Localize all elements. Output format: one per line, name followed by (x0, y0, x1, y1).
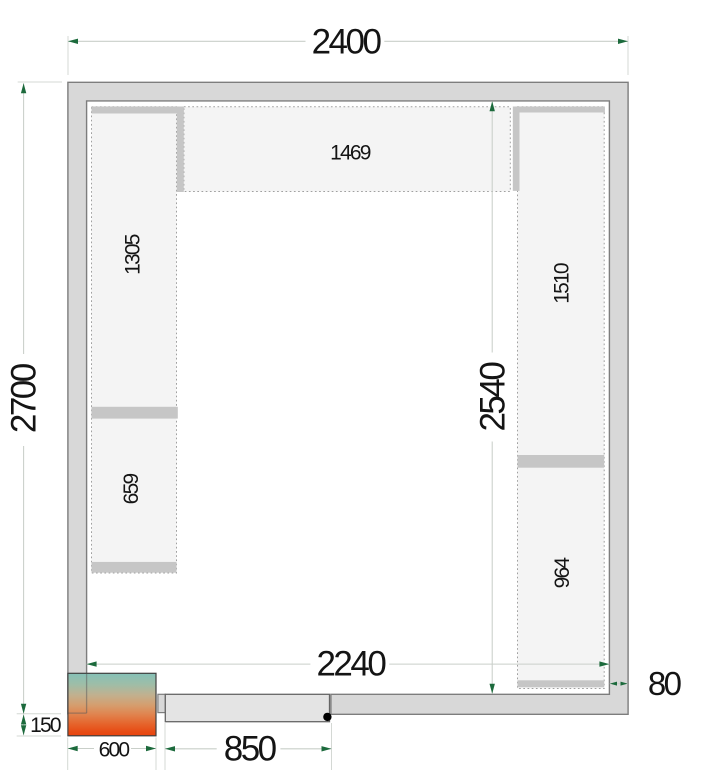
svg-text:2400: 2400 (312, 22, 382, 61)
svg-text:2700: 2700 (5, 363, 44, 433)
svg-text:1305: 1305 (121, 234, 144, 275)
svg-text:1510: 1510 (551, 263, 574, 304)
svg-text:964: 964 (551, 557, 574, 589)
svg-text:600: 600 (99, 739, 130, 762)
svg-text:1469: 1469 (330, 141, 371, 164)
svg-text:2540: 2540 (473, 362, 512, 432)
svg-text:150: 150 (30, 714, 61, 737)
svg-text:659: 659 (120, 474, 143, 505)
svg-text:2240: 2240 (316, 644, 386, 683)
svg-text:850: 850 (224, 730, 277, 769)
svg-text:80: 80 (648, 665, 682, 702)
